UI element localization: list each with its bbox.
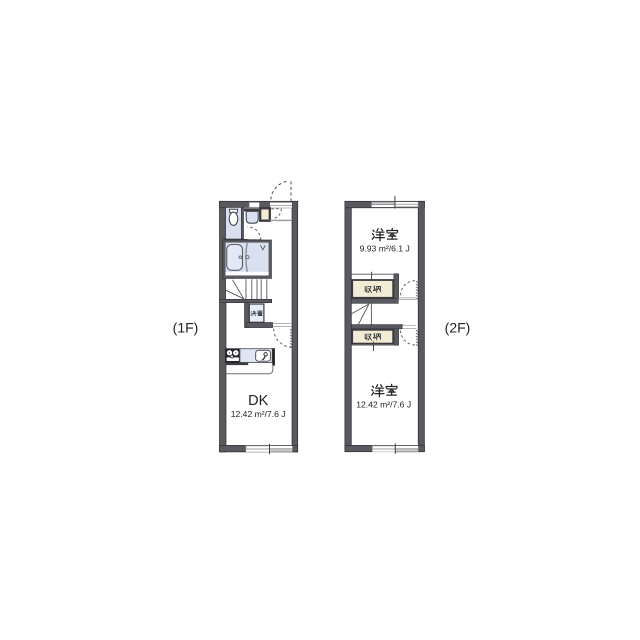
svg-text:(2F): (2F): [445, 319, 471, 335]
svg-text:12.42 m²/7.6 J: 12.42 m²/7.6 J: [231, 409, 286, 419]
svg-text:DK: DK: [248, 393, 268, 409]
svg-text:12.42 m²/7.6 J: 12.42 m²/7.6 J: [356, 400, 411, 410]
svg-text:9.93 m²/6.1 J: 9.93 m²/6.1 J: [360, 244, 410, 254]
svg-text:(1F): (1F): [173, 319, 199, 335]
